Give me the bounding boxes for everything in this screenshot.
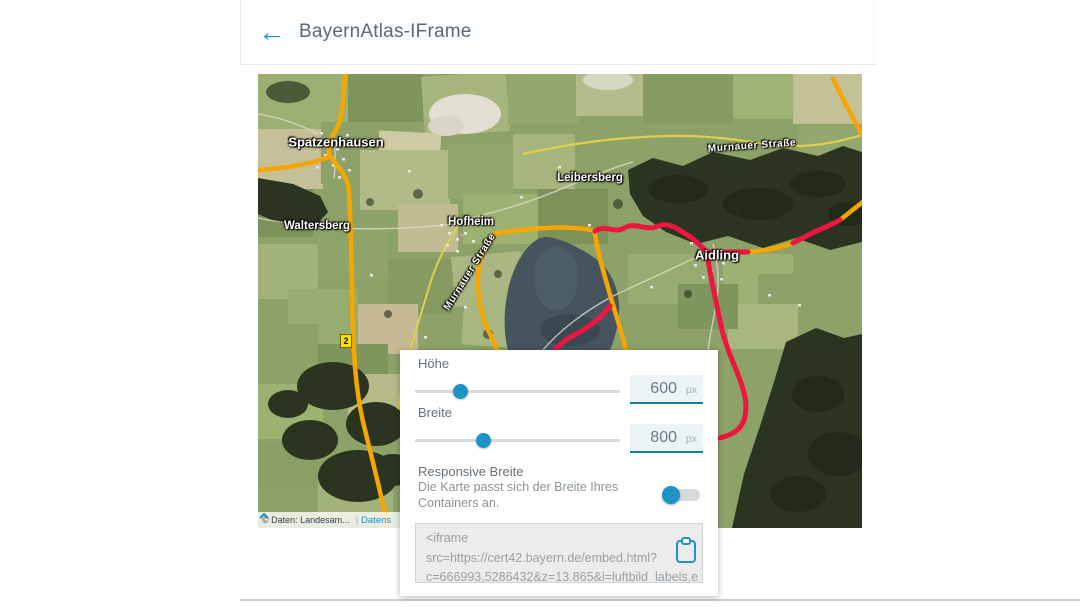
- responsive-width-label: Responsive Breite: [418, 464, 524, 479]
- bottom-divider: [240, 599, 1080, 601]
- embed-code-line: c=666993,5286432&z=13.865&l=luftbild_lab…: [426, 568, 692, 583]
- attribution-separator: |: [356, 515, 358, 525]
- height-unit: px: [686, 384, 697, 396]
- embed-code-line: src=https://cert42.bayern.de/embed.html?: [426, 549, 692, 569]
- iframe-settings-dialog: Höhe px Breite px Responsive Breite Die …: [400, 350, 718, 596]
- width-slider-track[interactable]: [415, 439, 620, 442]
- embed-code-line: <iframe: [426, 529, 692, 549]
- clipboard-icon: [674, 536, 698, 565]
- iframe-tool-header: ← BayernAtlas-IFrame: [240, 0, 877, 65]
- width-slider-thumb[interactable]: [476, 433, 491, 448]
- toggle-knob[interactable]: [662, 486, 680, 504]
- width-field: px: [630, 424, 703, 453]
- embed-code-box[interactable]: <iframe src=https://cert42.bayern.de/emb…: [415, 523, 703, 583]
- copy-to-clipboard-button[interactable]: [672, 536, 700, 568]
- back-arrow-icon[interactable]: ←: [255, 15, 289, 49]
- route-marker-2[interactable]: 2: [340, 334, 352, 348]
- height-label: Höhe: [418, 356, 449, 371]
- width-label: Breite: [418, 405, 452, 420]
- attribution-bar: © Daten: Landesam... | Datens: [258, 512, 405, 528]
- width-slider[interactable]: [415, 432, 620, 448]
- height-slider-thumb[interactable]: [453, 384, 468, 399]
- datenschutz-link[interactable]: Datens: [361, 515, 391, 526]
- height-field: px: [630, 375, 703, 404]
- height-slider-track[interactable]: [415, 390, 620, 393]
- responsive-width-toggle[interactable]: [662, 486, 700, 504]
- width-unit: px: [686, 433, 697, 445]
- responsive-width-description: Die Karte passt sich der Breite Ihres Co…: [418, 480, 658, 511]
- height-slider[interactable]: [415, 383, 620, 399]
- page-title: BayernAtlas-IFrame: [299, 21, 472, 43]
- copyright-text: © Daten: Landesam...: [262, 515, 350, 525]
